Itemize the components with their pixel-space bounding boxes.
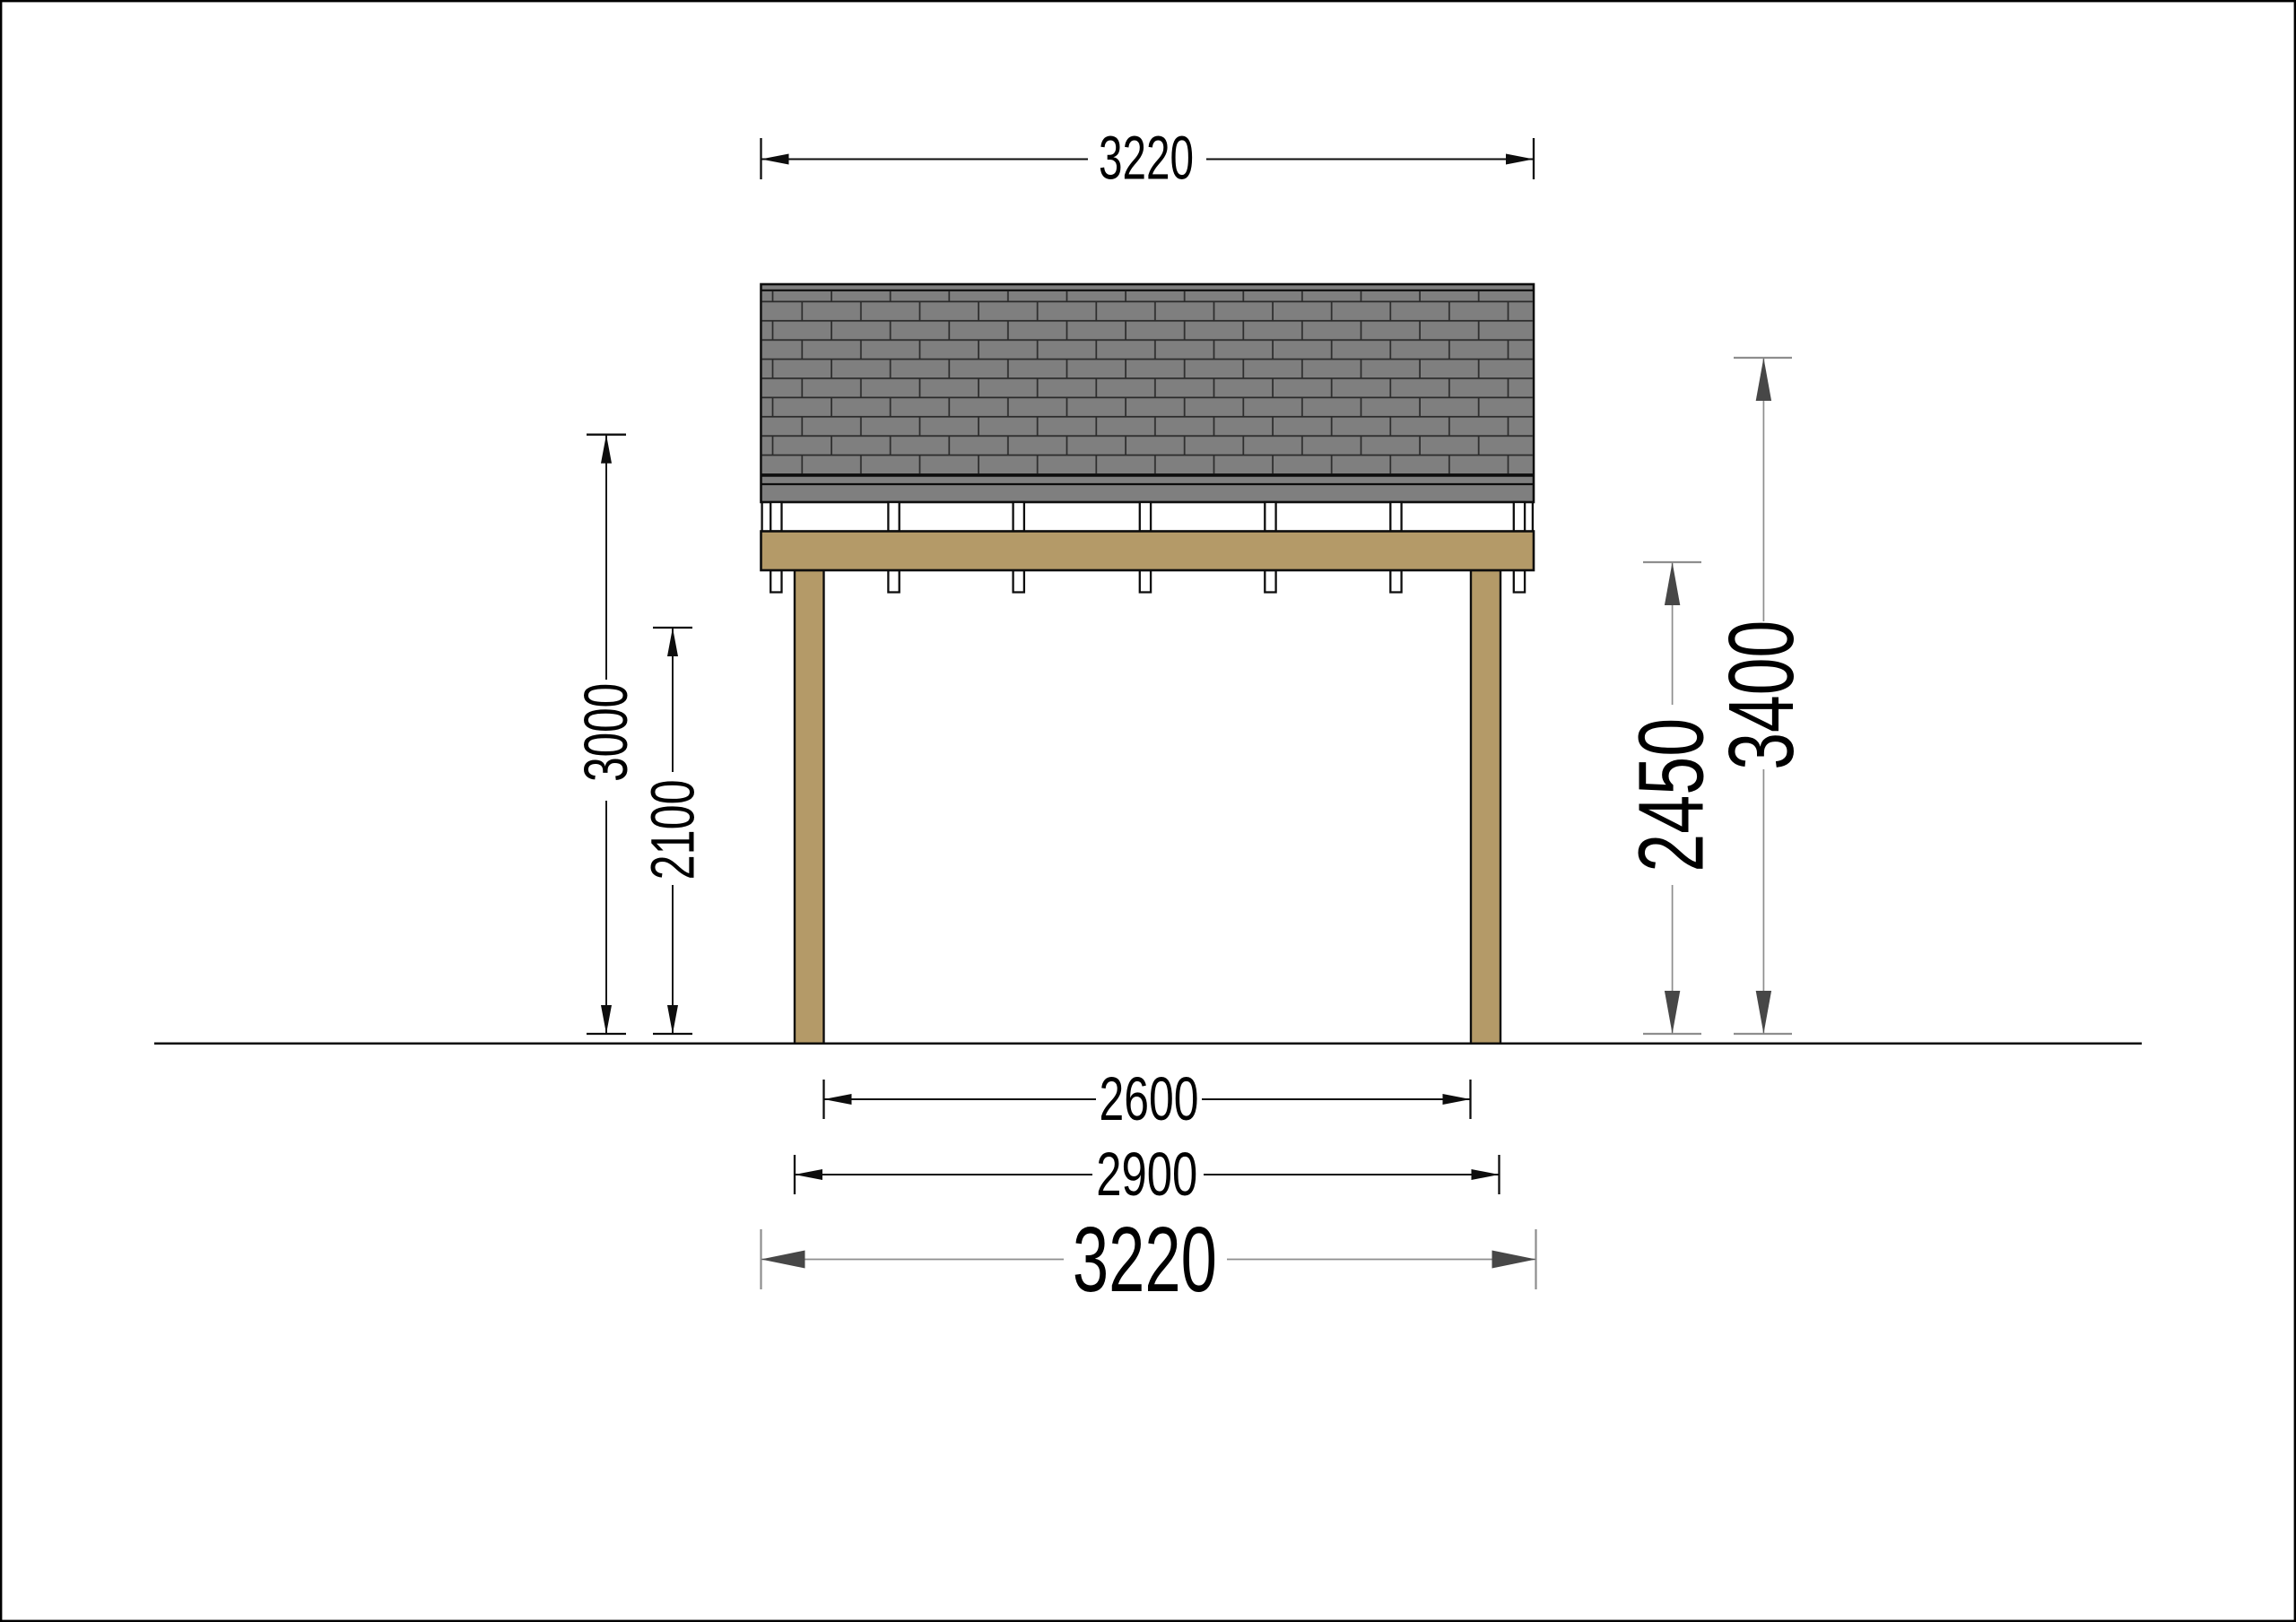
svg-text:2600: 2600: [1100, 1064, 1199, 1133]
svg-text:3220: 3220: [1099, 123, 1194, 192]
svg-text:3400: 3400: [1709, 620, 1813, 770]
svg-text:3000: 3000: [571, 683, 640, 782]
svg-text:3220: 3220: [1073, 1208, 1217, 1311]
svg-text:2100: 2100: [639, 779, 708, 880]
svg-text:2450: 2450: [1620, 718, 1723, 872]
svg-text:2900: 2900: [1096, 1140, 1197, 1209]
